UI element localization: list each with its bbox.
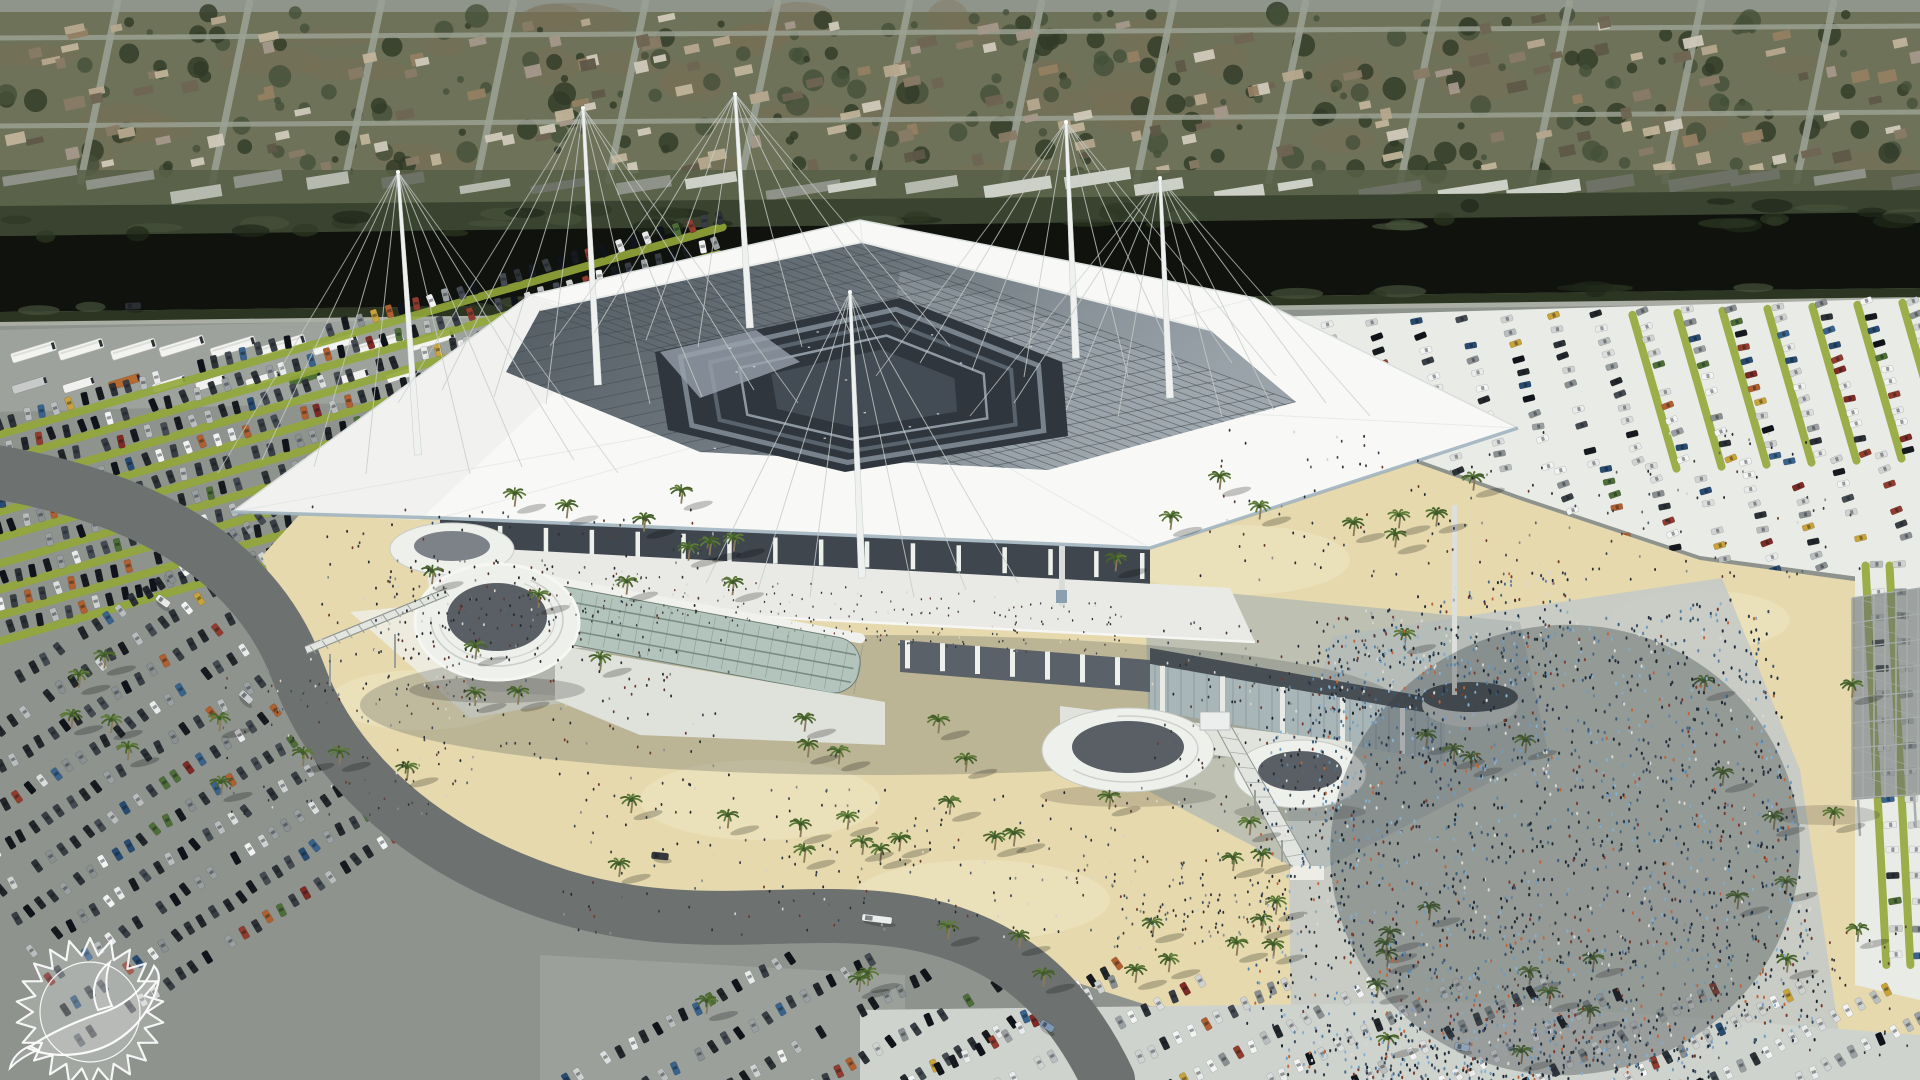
rendering-canvas bbox=[0, 0, 1920, 1080]
residential-neighborhood bbox=[0, 0, 1920, 215]
stadium-aerial-rendering bbox=[0, 0, 1920, 1080]
